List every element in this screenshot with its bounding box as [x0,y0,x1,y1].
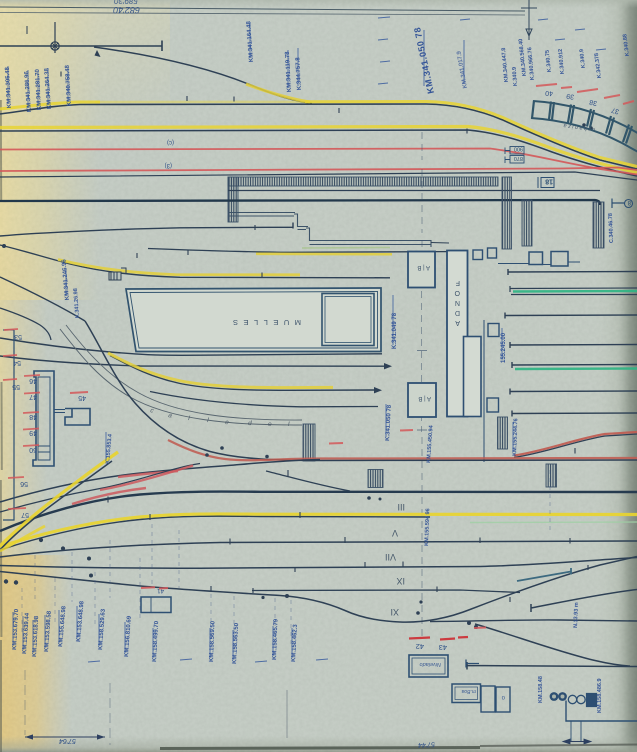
svg-text:589'30: 589'30 [114,0,138,5]
svg-text:m.Boa: m.Boa [461,688,476,694]
svg-text:900: 900 [514,146,523,152]
svg-text:A: A [455,319,460,326]
svg-text:46: 46 [29,377,37,384]
svg-text:50: 50 [29,446,37,453]
svg-text:(3): (3) [165,162,172,168]
svg-text:54: 54 [13,359,21,366]
svg-text:A | B: A | B [417,264,430,270]
svg-text:D: D [455,309,460,316]
svg-text:53: 53 [14,333,22,340]
svg-text:870: 870 [514,155,523,161]
svg-text:O: O [454,289,460,296]
svg-text:49: 49 [29,429,37,436]
svg-text:N.13.93 m: N.13.93 m [573,602,580,628]
svg-text:MUELLES: MUELLES [227,318,301,327]
svg-text:45: 45 [78,394,86,401]
svg-text:KM.158.486.9: KM.158.486.9 [597,678,603,713]
svg-text:IX: IX [396,576,405,586]
svg-text:Nivelado: Nivelado [420,661,441,667]
svg-text:47: 47 [29,393,37,400]
svg-text:N: N [455,299,460,306]
svg-text:F: F [456,279,460,286]
svg-text:XI: XI [390,607,399,617]
svg-text:A | B: A | B [418,395,431,401]
svg-text:43: 43 [439,643,447,652]
svg-text:VII: VII [385,552,396,562]
svg-text:(c): (c) [167,139,174,145]
svg-text:18: 18 [545,178,553,185]
svg-text:42: 42 [416,642,424,651]
svg-text:39: 39 [566,92,575,100]
svg-text:48: 48 [29,413,37,420]
svg-text:55: 55 [12,383,20,390]
svg-text:57'64: 57'64 [59,737,76,744]
svg-text:d: d [248,420,252,427]
svg-text:56: 56 [20,480,28,487]
svg-text:III: III [397,502,405,512]
svg-text:e: e [268,421,272,428]
svg-text:57: 57 [21,511,29,518]
svg-text:C.340.46.78: C.340.46.78 [608,213,615,243]
svg-text:V: V [392,528,398,538]
svg-text:682'40: 682'40 [113,5,140,15]
svg-text:40: 40 [545,89,553,97]
svg-text:57'44: 57'44 [418,740,435,748]
svg-text:KM.158.48: KM.158.48 [538,676,544,703]
